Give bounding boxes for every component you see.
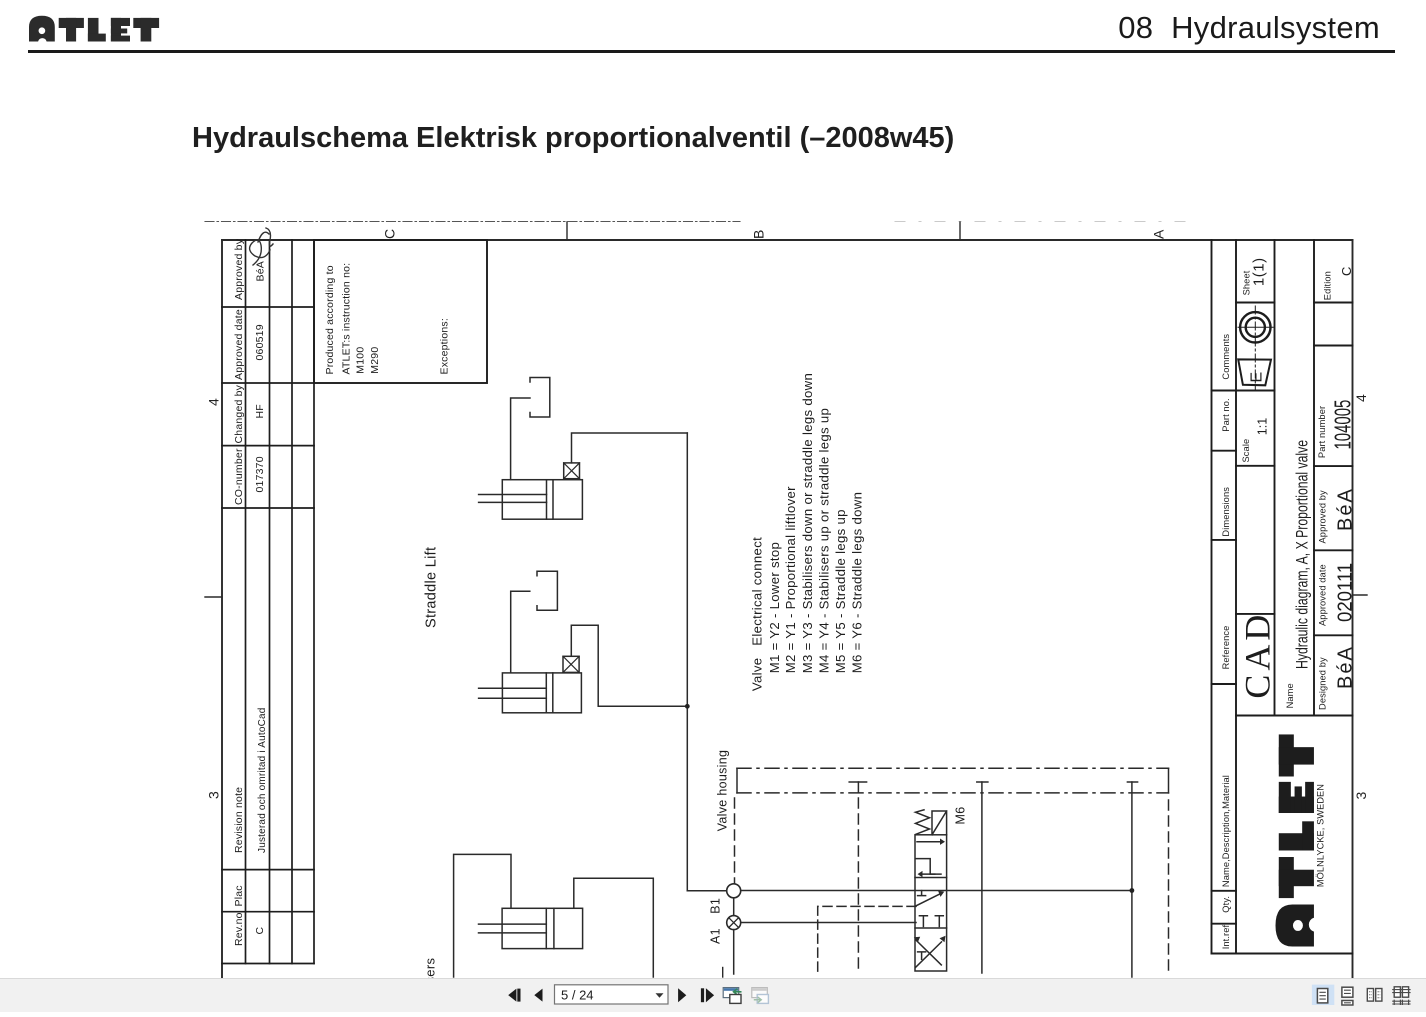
svg-text:Qty.: Qty. [1221, 896, 1231, 913]
svg-text:3: 3 [206, 791, 222, 799]
svg-text:Approved date: Approved date [1318, 564, 1328, 626]
svg-text:1(1): 1(1) [1251, 257, 1268, 286]
svg-text:Int.ref: Int.ref [1221, 925, 1231, 950]
svg-text:M290: M290 [369, 347, 381, 374]
svg-text:M1 = Y2 - Lower stop: M1 = Y2 - Lower stop [767, 542, 782, 673]
svg-text:Hydraulic diagram, A, X Propor: Hydraulic diagram, A, X Proportional val… [1294, 440, 1312, 669]
svg-text:M5 = Y5 - Straddle legs up: M5 = Y5 - Straddle legs up [833, 509, 848, 673]
svg-text:A1: A1 [709, 928, 723, 944]
svg-text:CO-number: CO-number [233, 448, 245, 505]
svg-text:Revision note: Revision note [233, 787, 245, 853]
svg-text:A: A [1151, 229, 1167, 239]
svg-text:Edition: Edition [1323, 271, 1333, 300]
svg-text:Reference: Reference [1221, 626, 1231, 670]
svg-text:B: B [751, 230, 767, 239]
svg-text:3: 3 [1353, 792, 1369, 800]
svg-text:4: 4 [206, 398, 222, 406]
svg-text:M3 = Y3 - Stabilisers down or: M3 = Y3 - Stabilisers down or straddle l… [800, 373, 815, 673]
svg-text:Part no.: Part no. [1221, 398, 1231, 431]
svg-text:020111: 020111 [1335, 563, 1357, 622]
svg-text:Dimensions: Dimensions [1221, 487, 1231, 537]
svg-text:Comments: Comments [1221, 334, 1231, 380]
svg-text:M6: M6 [954, 807, 968, 825]
svg-text:M6 = Y6 - Straddle legs down: M6 = Y6 - Straddle legs down [850, 492, 865, 674]
svg-text:Approved by: Approved by [233, 238, 245, 300]
svg-text:Straddle Lift: Straddle Lift [424, 547, 440, 628]
svg-text:BéA: BéA [255, 261, 267, 281]
svg-text:Produced according to: Produced according to [324, 265, 336, 374]
svg-text:1:1: 1:1 [1256, 418, 1270, 435]
svg-text:B1: B1 [709, 898, 723, 914]
svg-text:MÖLNLYCKE, SWEDEN: MÖLNLYCKE, SWEDEN [1316, 784, 1326, 887]
svg-text:Valve housing: Valve housing [716, 750, 730, 832]
svg-text:Changed by: Changed by [233, 384, 245, 443]
svg-text:C: C [254, 927, 266, 935]
svg-text:Name,Description,Material: Name,Description,Material [1221, 775, 1231, 887]
svg-text:Approved date: Approved date [233, 309, 245, 380]
svg-text:HF: HF [254, 404, 266, 418]
svg-text:Approved by: Approved by [1318, 490, 1328, 544]
svg-text:Name: Name [1285, 683, 1295, 708]
svg-text:Plac: Plac [233, 885, 245, 906]
svg-text:Designed by: Designed by [1318, 657, 1328, 710]
svg-text:017370: 017370 [254, 456, 266, 492]
svg-text:M4 = Y4 - Stabilisers up or st: M4 = Y4 - Stabilisers up or straddle leg… [817, 408, 832, 673]
svg-text:BéA: BéA [1335, 487, 1357, 531]
svg-text:Exceptions:: Exceptions: [439, 318, 451, 374]
svg-text:Justerad och omritad i AutoCad: Justerad och omritad i AutoCad [257, 707, 268, 853]
svg-text:BéA: BéA [1335, 645, 1357, 689]
svg-text:C: C [1339, 267, 1354, 276]
svg-text:060519: 060519 [254, 324, 266, 360]
svg-text:Part number: Part number [1317, 406, 1327, 458]
svg-text:Valve Electrical connect: Valve Electrical connect [750, 537, 765, 691]
svg-text:M100: M100 [355, 347, 367, 374]
svg-text:E: E [1249, 372, 1266, 383]
svg-text:CAD: CAD [1238, 611, 1278, 699]
svg-text:104005: 104005 [1330, 400, 1356, 450]
svg-text:C: C [382, 229, 398, 239]
svg-text:ATLET:s instruction no:: ATLET:s instruction no: [341, 263, 353, 375]
svg-text:M2 = Y1 - Proportional liftlov: M2 = Y1 - Proportional liftlover [783, 486, 798, 673]
svg-text:Scale: Scale [1241, 439, 1251, 463]
svg-text:5 / 24: 5 / 24 [561, 987, 594, 1002]
svg-text:Rev.no: Rev.no [233, 912, 245, 946]
